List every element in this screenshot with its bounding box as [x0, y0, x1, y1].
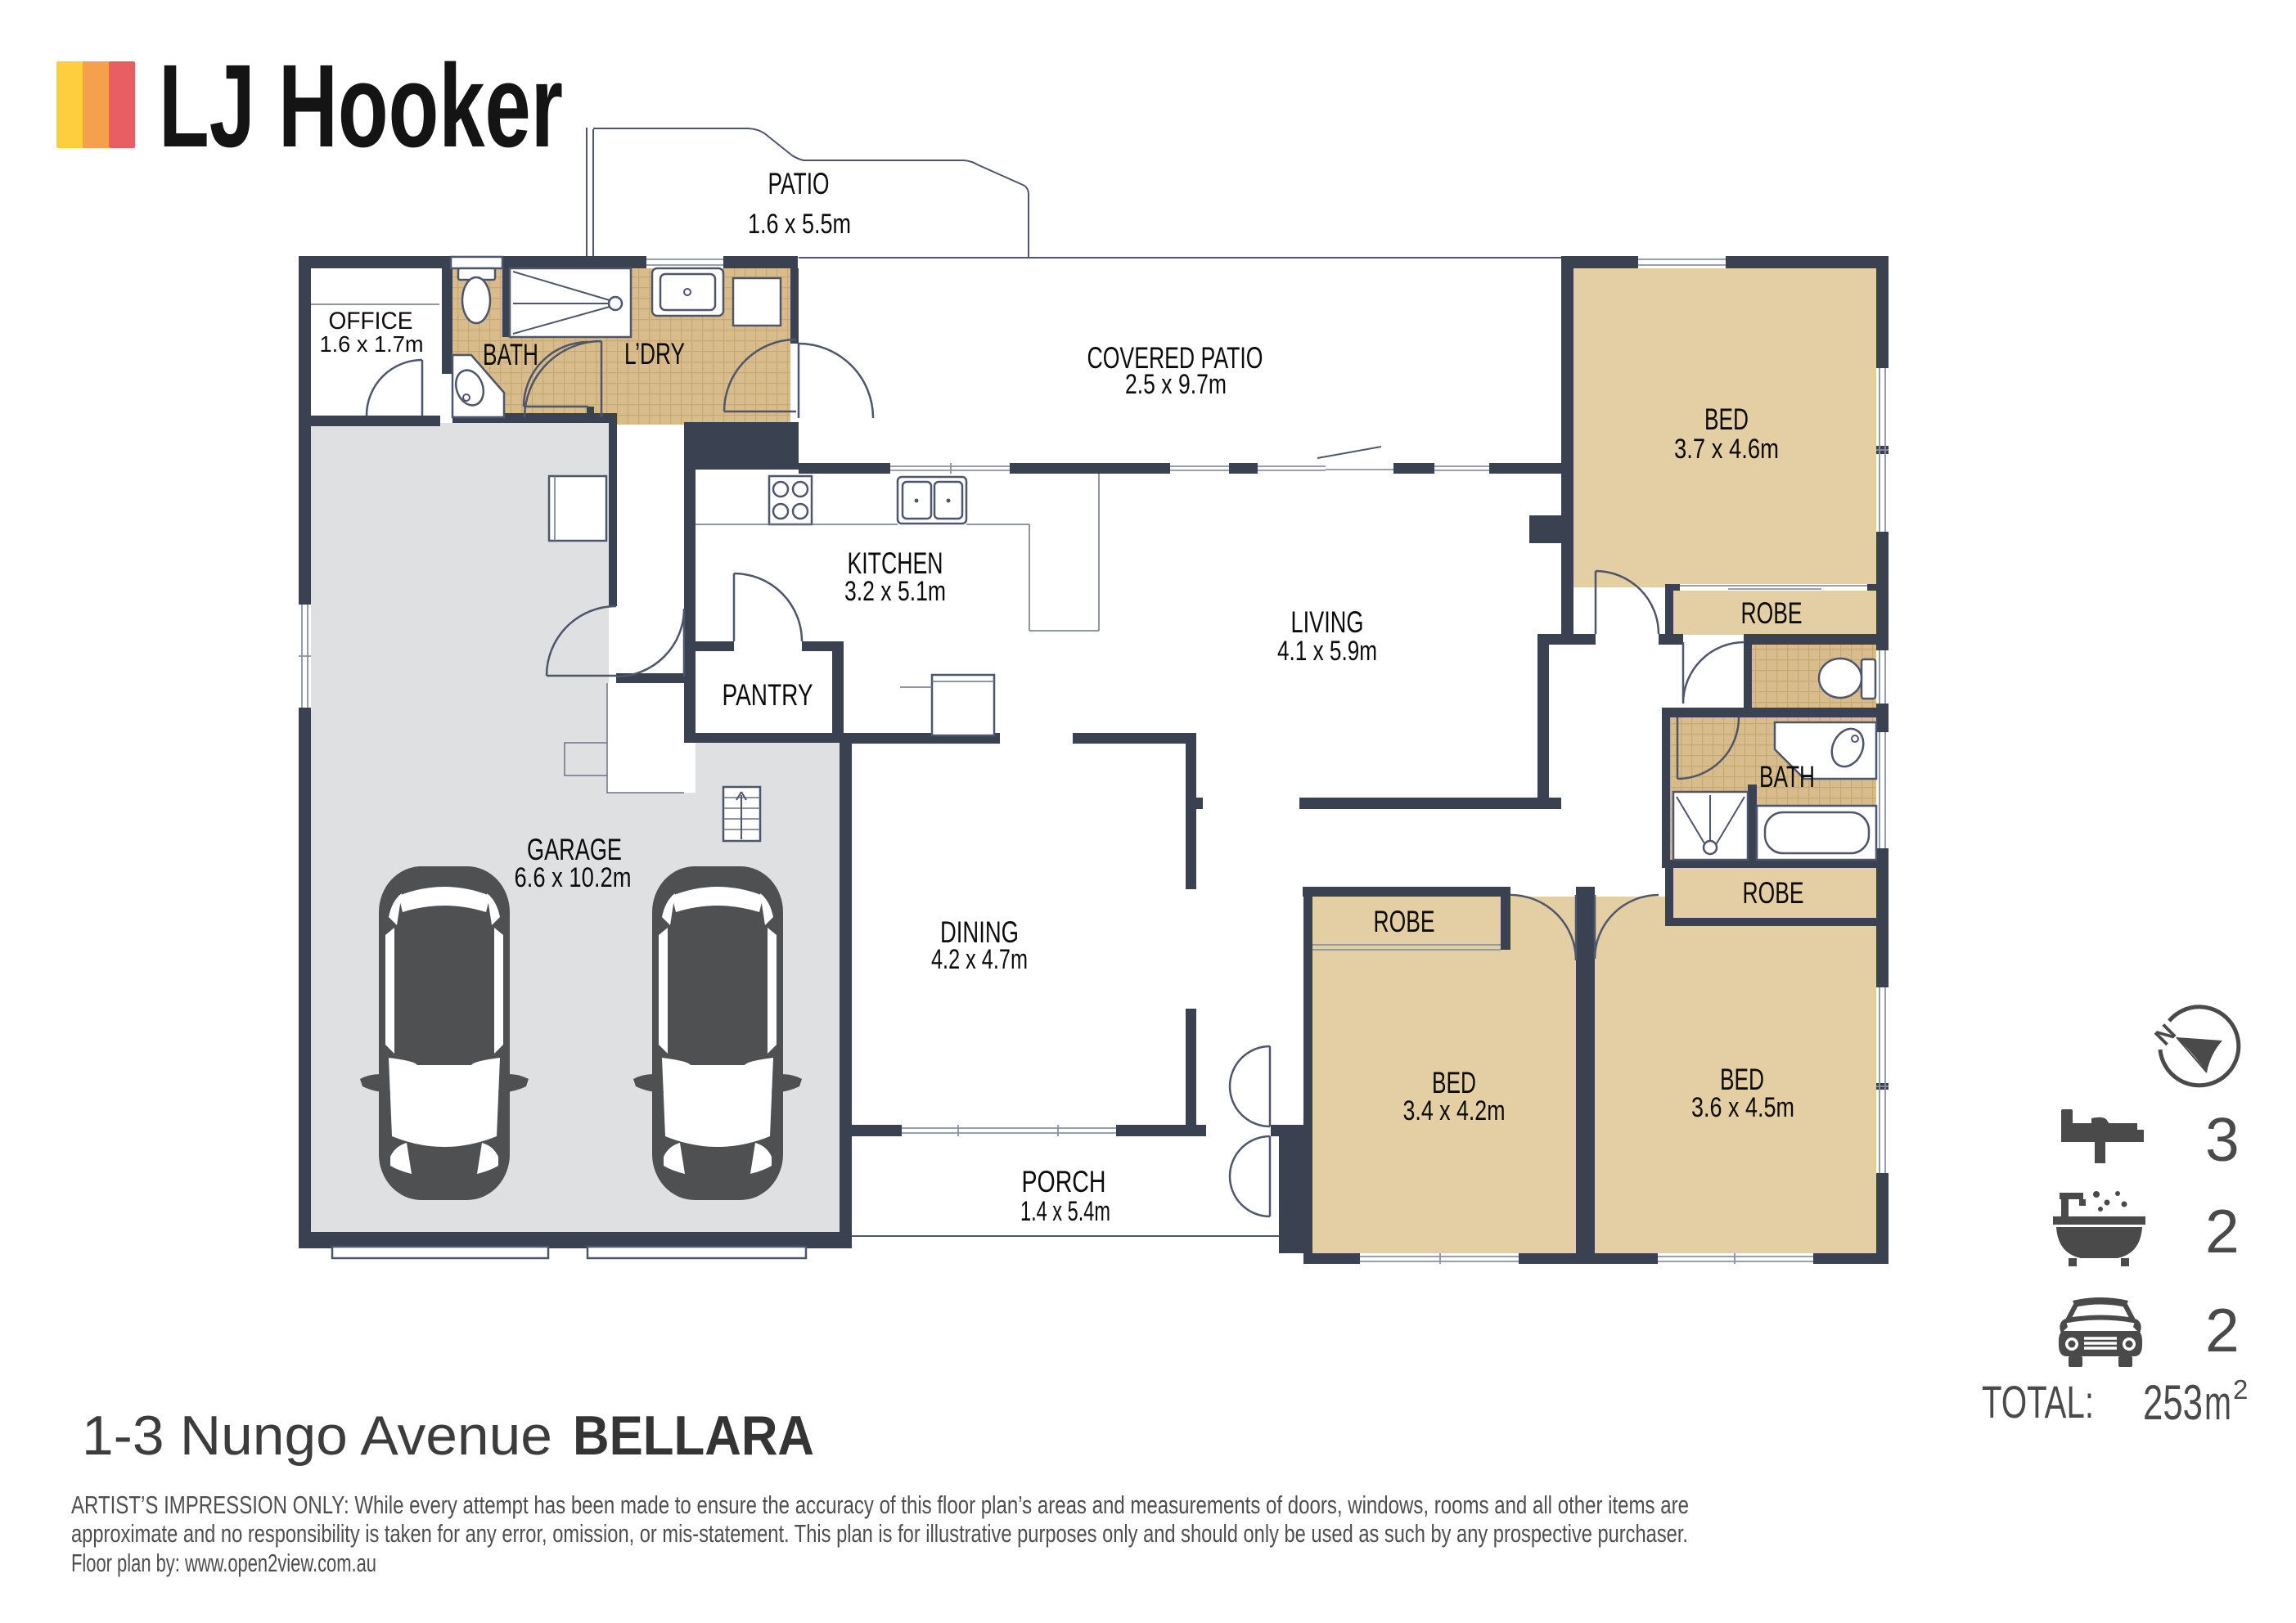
svg-text:3.2 x 5.1m: 3.2 x 5.1m [844, 576, 946, 607]
svg-text:LIVING: LIVING [1291, 605, 1364, 639]
svg-text:ROBE: ROBE [1743, 876, 1804, 910]
svg-text:TOTAL:: TOTAL: [1982, 1376, 2094, 1427]
svg-text:2.5 x 9.7m: 2.5 x 9.7m [1125, 369, 1227, 400]
svg-text:1.6 x 1.7m: 1.6 x 1.7m [320, 331, 424, 357]
svg-text:ROBE: ROBE [1374, 905, 1435, 938]
svg-text:PORCH: PORCH [1022, 1165, 1106, 1198]
svg-text:BATH: BATH [483, 338, 538, 371]
svg-text:PATIO: PATIO [768, 167, 830, 200]
svg-text:PANTRY: PANTRY [723, 678, 813, 712]
svg-text:Floor plan by: www.open2view.c: Floor plan by: www.open2view.com.au [71, 1549, 376, 1577]
svg-text:1-3 Nungo Avenue: 1-3 Nungo Avenue [82, 1405, 552, 1467]
svg-text:6.6 x 10.2m: 6.6 x 10.2m [515, 862, 632, 893]
svg-text:2: 2 [2233, 1374, 2248, 1405]
svg-text:BED: BED [1720, 1063, 1764, 1096]
svg-text:1.6 x 5.5m: 1.6 x 5.5m [748, 209, 851, 240]
svg-text:BELLARA: BELLARA [573, 1405, 814, 1467]
svg-text:BATH: BATH [1759, 760, 1815, 794]
svg-text:3: 3 [2205, 1105, 2240, 1174]
svg-text:ARTIST’S IMPRESSION ONLY: Whil: ARTIST’S IMPRESSION ONLY: While every at… [71, 1490, 1689, 1519]
svg-text:GARAGE: GARAGE [527, 833, 622, 866]
svg-text:4.2 x 4.7m: 4.2 x 4.7m [931, 944, 1028, 975]
svg-text:3.7 x 4.6m: 3.7 x 4.6m [1674, 434, 1779, 465]
svg-text:3.4 x 4.2m: 3.4 x 4.2m [1403, 1095, 1506, 1126]
svg-text:L’DRY: L’DRY [624, 337, 685, 371]
svg-text:KITCHEN: KITCHEN [848, 546, 943, 580]
svg-text:m: m [2204, 1377, 2231, 1430]
svg-text:4.1 x 5.9m: 4.1 x 5.9m [1277, 636, 1377, 667]
svg-text:LJ Hooker: LJ Hooker [159, 40, 563, 172]
svg-text:approximate and no responsibil: approximate and no responsibility is tak… [71, 1519, 1688, 1548]
svg-text:3.6 x 4.5m: 3.6 x 4.5m [1691, 1092, 1794, 1123]
svg-text:253: 253 [2143, 1375, 2203, 1430]
svg-text:2: 2 [2205, 1296, 2240, 1364]
svg-text:2: 2 [2205, 1197, 2240, 1266]
svg-text:BED: BED [1432, 1066, 1476, 1099]
svg-text:BED: BED [1704, 402, 1749, 436]
svg-text:ROBE: ROBE [1741, 596, 1803, 630]
svg-text:1.4 x 5.4m: 1.4 x 5.4m [1020, 1196, 1110, 1227]
